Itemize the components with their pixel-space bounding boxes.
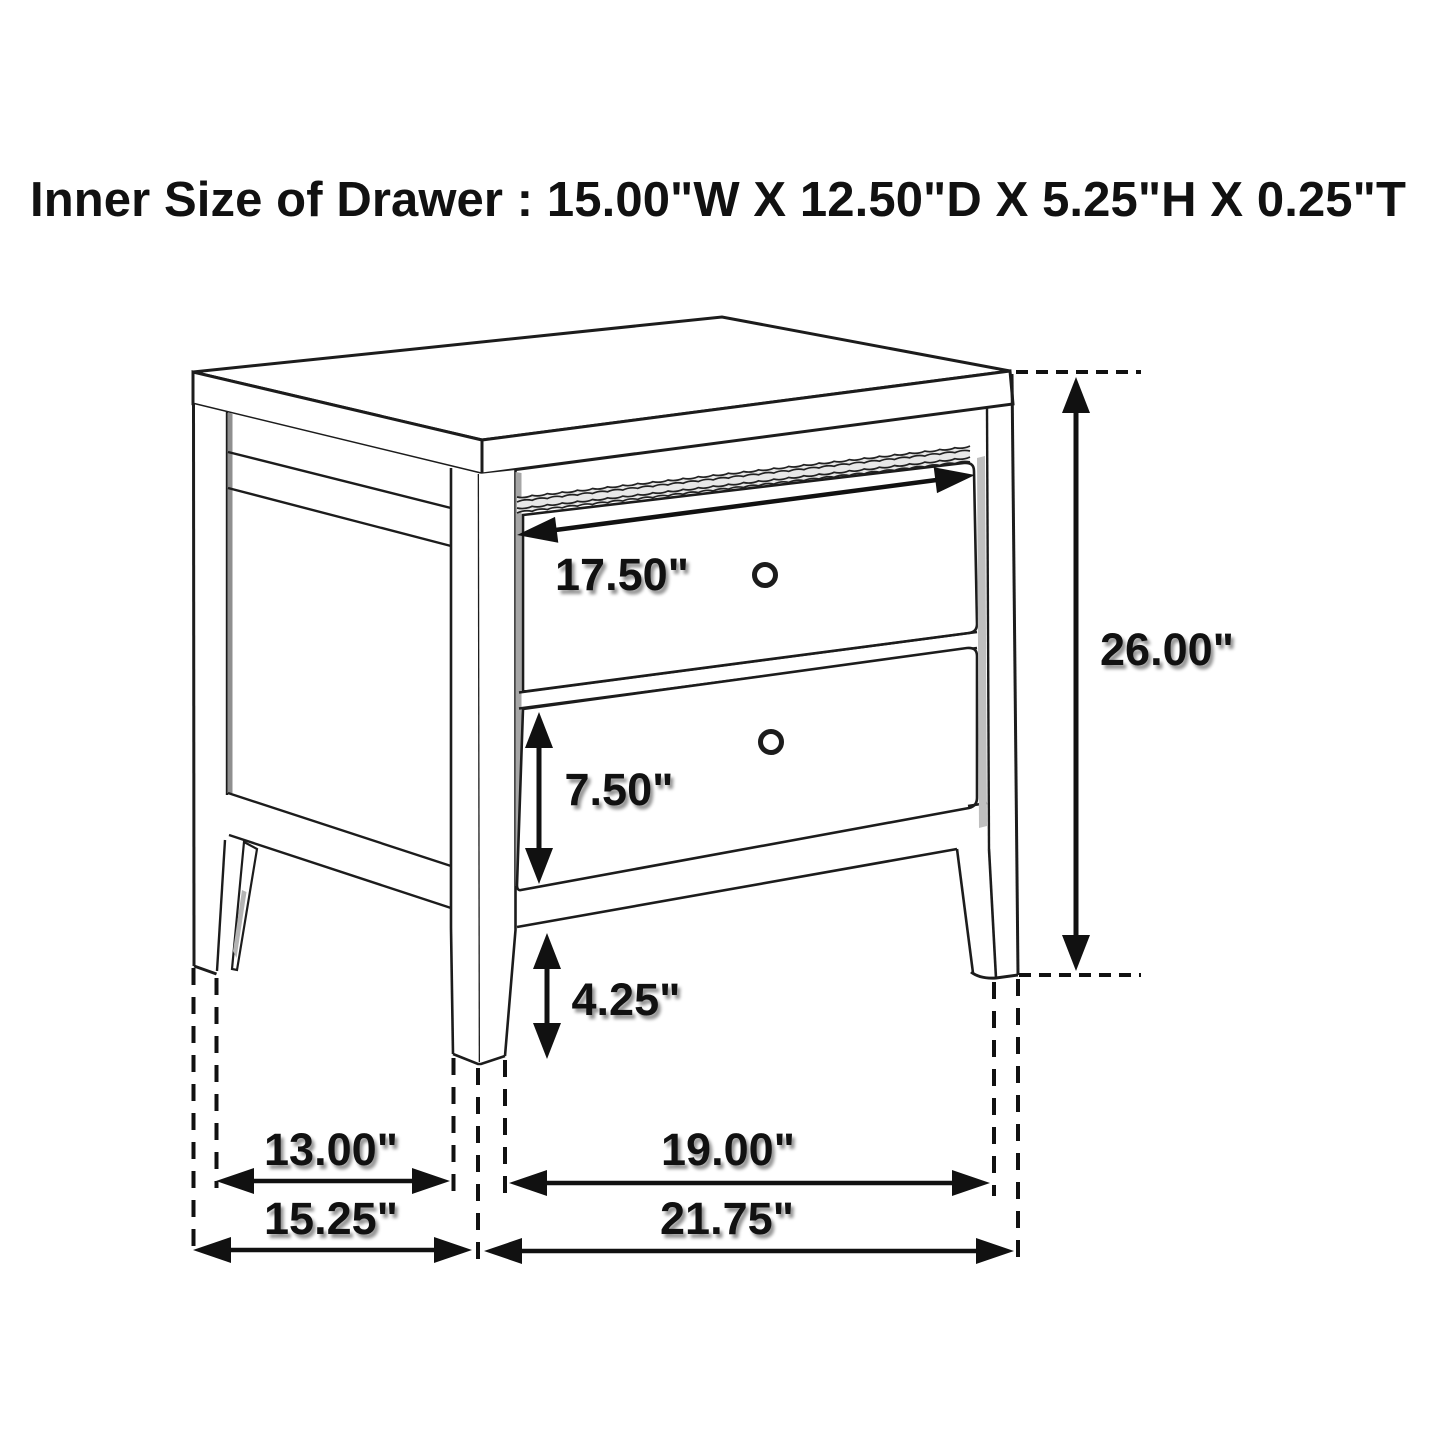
svg-text:19.00": 19.00" [661, 1124, 795, 1175]
svg-text:4.25": 4.25" [572, 974, 681, 1025]
svg-text:7.50": 7.50" [565, 764, 674, 815]
svg-text:13.00": 13.00" [264, 1124, 398, 1175]
svg-text:17.50": 17.50" [555, 549, 689, 600]
svg-text:26.00": 26.00" [1100, 624, 1234, 675]
svg-text:15.25": 15.25" [264, 1193, 398, 1244]
svg-text:21.75": 21.75" [660, 1193, 794, 1244]
